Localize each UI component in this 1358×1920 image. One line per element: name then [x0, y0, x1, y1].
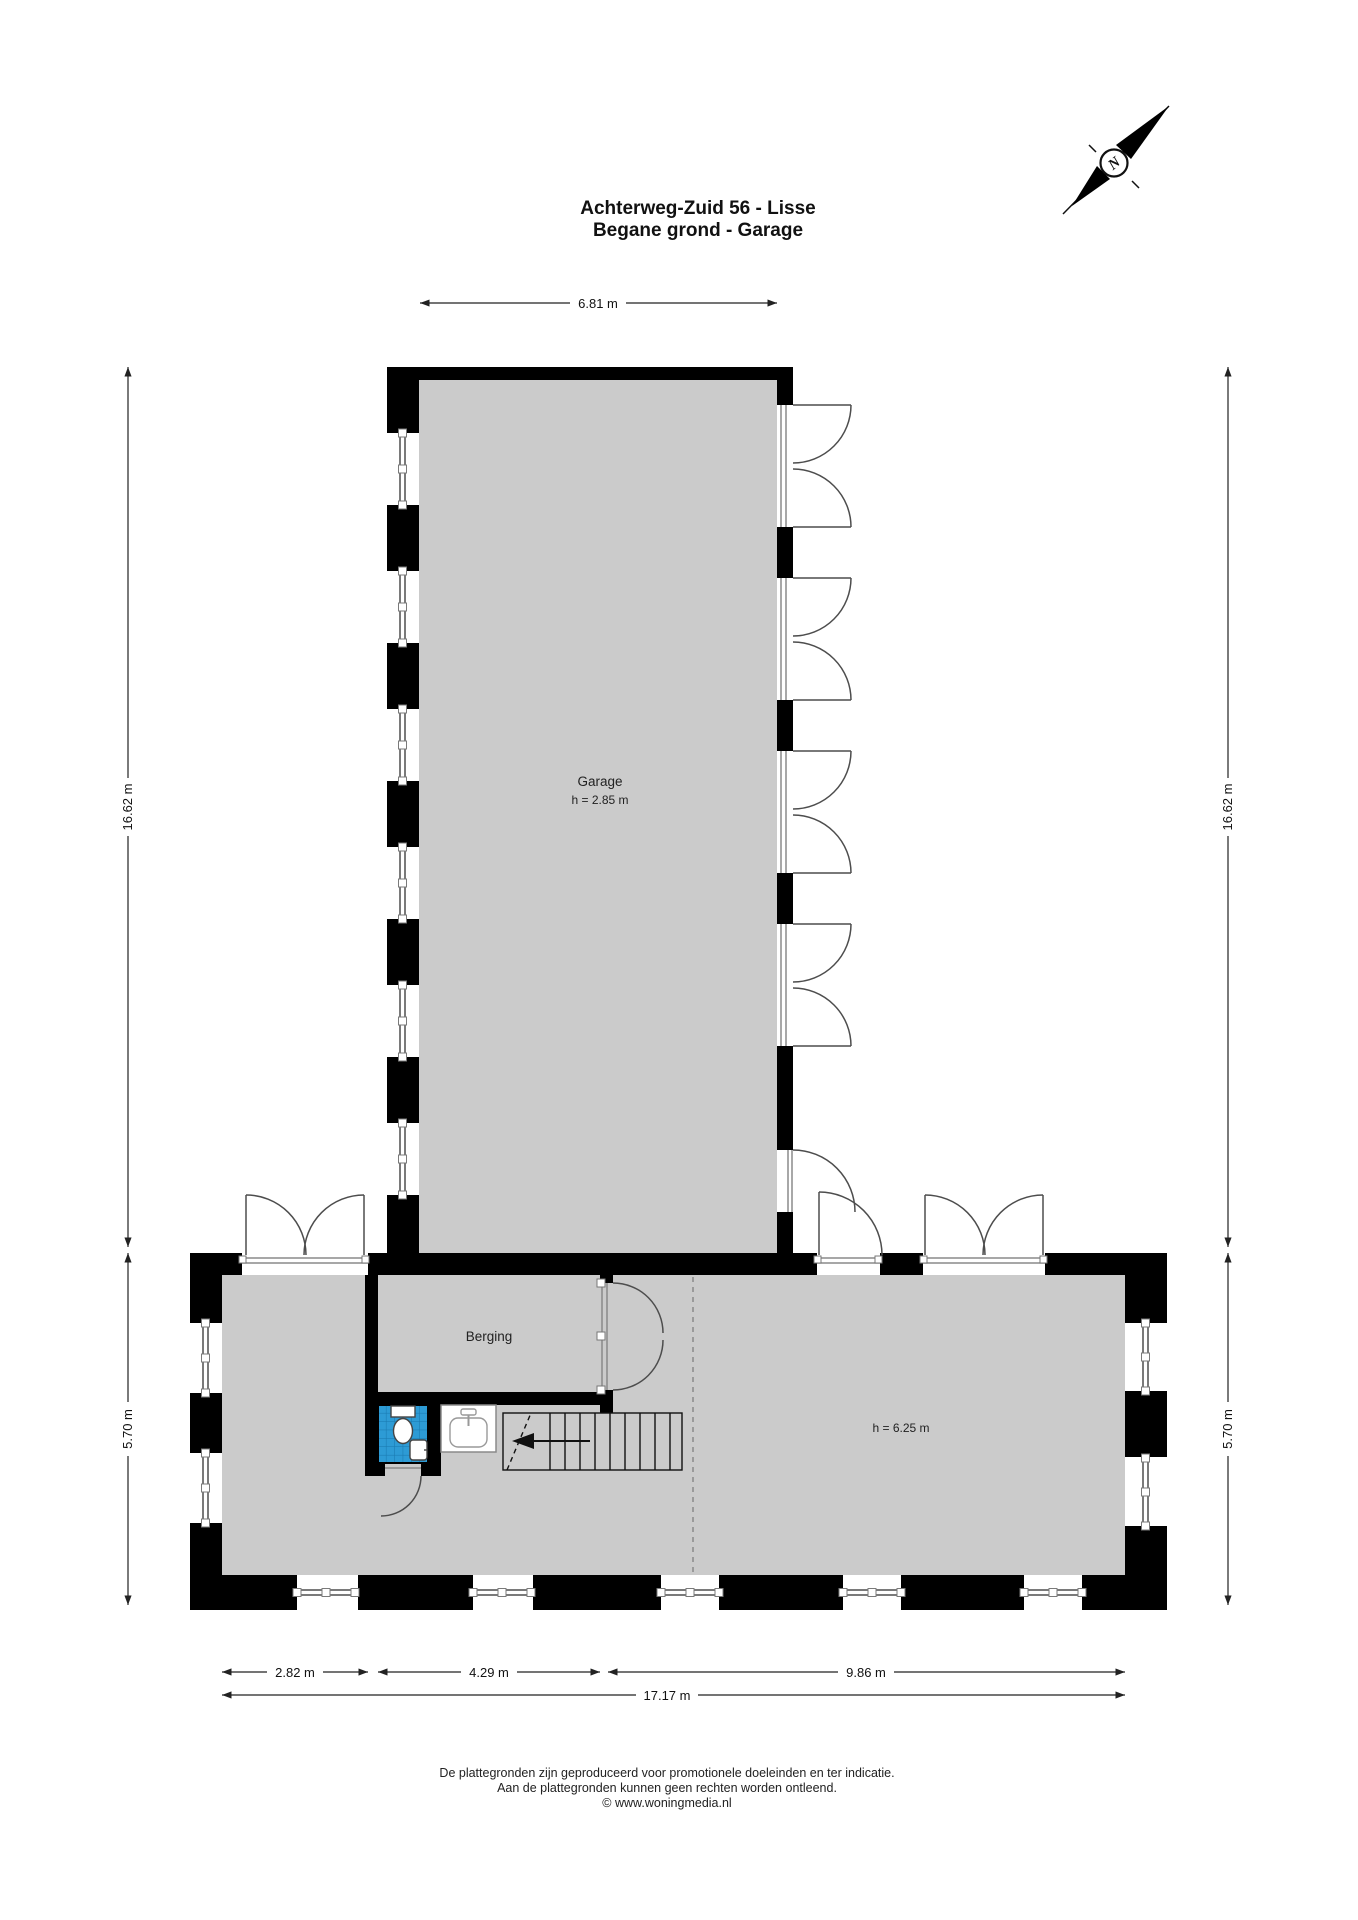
main-hall-height-label: h = 6.25 m	[872, 1421, 929, 1435]
garage-floor	[418, 377, 777, 1255]
disclaimer-copyright: © www.woningmedia.nl	[439, 1796, 894, 1811]
dim-top-width: 6.81 m	[578, 296, 618, 311]
washbasin-unit	[441, 1405, 496, 1452]
lower-hall-floor	[222, 1275, 1125, 1575]
dim-right-upper: 16.62 m	[1220, 784, 1235, 831]
berging-label: Berging	[466, 1329, 513, 1344]
floor-areas	[222, 377, 1125, 1575]
compass-icon: N	[1063, 106, 1169, 214]
toilet-room	[378, 1405, 428, 1463]
toilet-cistern	[391, 1406, 415, 1417]
floorplan-drawing: 6.81 m 16.62 m 5.70 m 16.62 m 5.70 m 2.8…	[0, 0, 1358, 1920]
garage-label: Garage	[577, 774, 622, 789]
floorplan-page: Achterweg-Zuid 56 - Lisse Begane grond -…	[0, 0, 1358, 1920]
dim-right-lower: 5.70 m	[1220, 1409, 1235, 1449]
dim-left-lower: 5.70 m	[120, 1409, 135, 1449]
toilet-bowl	[394, 1419, 413, 1444]
garage-height-label: h = 2.85 m	[571, 793, 628, 807]
dim-bottom-total: 17.17 m	[644, 1688, 691, 1703]
dim-bottom-right: 9.86 m	[846, 1665, 886, 1680]
disclaimer-line-2: Aan de plattegronden kunnen geen rechten…	[439, 1781, 894, 1796]
dim-left-upper: 16.62 m	[120, 784, 135, 831]
exterior-single-door	[819, 1192, 882, 1255]
disclaimer: De plattegronden zijn geproduceerd voor …	[439, 1766, 894, 1811]
disclaimer-line-1: De plattegronden zijn geproduceerd voor …	[439, 1766, 894, 1781]
washbasin-tap	[461, 1409, 476, 1415]
dim-bottom-left: 2.82 m	[275, 1665, 315, 1680]
garage-corner-door	[788, 1150, 855, 1212]
dim-bottom-middle: 4.29 m	[469, 1665, 509, 1680]
